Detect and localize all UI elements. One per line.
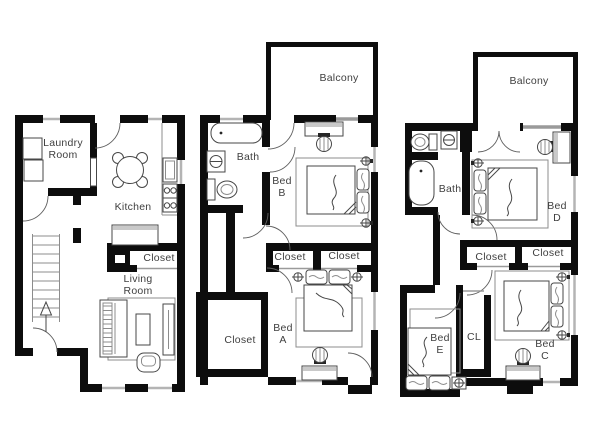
- pillow-icon: [406, 376, 427, 390]
- armchair-icon: [137, 353, 160, 372]
- bed-d-furniture: [471, 132, 570, 228]
- pillow-icon: [551, 283, 563, 304]
- floor-plan: Laundry Room Kitchen Closet Living Room …: [0, 0, 600, 424]
- bed-a-furniture: [292, 270, 363, 380]
- stool-icon: [538, 140, 553, 155]
- pillow-icon: [474, 193, 486, 214]
- kitchen-sink-icon: [163, 158, 177, 182]
- unit-1-drawing: [15, 115, 185, 392]
- toilet-icon: [411, 134, 437, 150]
- entry-stoop: [348, 385, 372, 394]
- bed-icon-c: [504, 281, 549, 331]
- bathroom-sink-icon: [207, 151, 225, 172]
- french-door-arc: [499, 131, 520, 152]
- unit-3-balcony-walls: [473, 52, 578, 123]
- bed-icon-a: [304, 285, 352, 331]
- toilet-icon: [207, 179, 237, 200]
- dining-set-icon: [113, 153, 148, 188]
- wall-sconce-icon: [351, 273, 363, 281]
- wall-sconce-icon: [292, 273, 304, 281]
- stool-icon: [317, 137, 332, 152]
- stove-icon: [163, 184, 177, 212]
- coffee-table-icon: [136, 314, 150, 345]
- wall-sconce-icon: [556, 331, 568, 339]
- entry-stoop: [507, 386, 533, 394]
- pillow-icon: [429, 376, 450, 390]
- pillow-icon: [551, 306, 563, 327]
- bed-icon-e: [408, 328, 451, 375]
- bed-b-furniture: [296, 122, 373, 227]
- unit-2-drawing: [196, 42, 378, 394]
- sofa-icon: [100, 300, 127, 357]
- stairs-icon: [33, 234, 60, 332]
- tv-console-icon: [163, 304, 174, 355]
- pillow-icon: [329, 270, 350, 284]
- pillow-icon: [306, 270, 327, 284]
- washer-dryer-icon: [23, 138, 43, 181]
- bathtub-icon: [211, 123, 262, 143]
- unit-3-windows: [523, 127, 575, 382]
- desk-icon: [553, 132, 570, 163]
- floor-plan-drawing: [0, 0, 600, 424]
- water-heater-icon: [110, 251, 130, 267]
- bathtub-icon: [409, 161, 434, 205]
- open-door-panel: [91, 158, 97, 186]
- desk-icon: [506, 366, 540, 380]
- unit-3-drawing: [400, 52, 578, 397]
- bathroom-sink-icon: [441, 131, 457, 149]
- pillow-icon: [357, 192, 369, 213]
- bed-icon-b: [307, 166, 355, 214]
- living-room-furniture: [100, 298, 175, 372]
- unit-2-balcony-walls: [266, 42, 378, 120]
- bed-icon-d: [488, 168, 537, 220]
- bed-c-furniture: [495, 271, 570, 380]
- kitchen-island-icon: [112, 225, 158, 245]
- pillow-icon: [357, 169, 369, 190]
- desk-icon: [302, 366, 337, 380]
- wall-sconce-icon: [556, 273, 568, 281]
- stool-icon: [313, 348, 328, 363]
- stool-icon: [516, 349, 531, 364]
- pillow-icon: [474, 170, 486, 191]
- french-door-arc: [478, 131, 499, 152]
